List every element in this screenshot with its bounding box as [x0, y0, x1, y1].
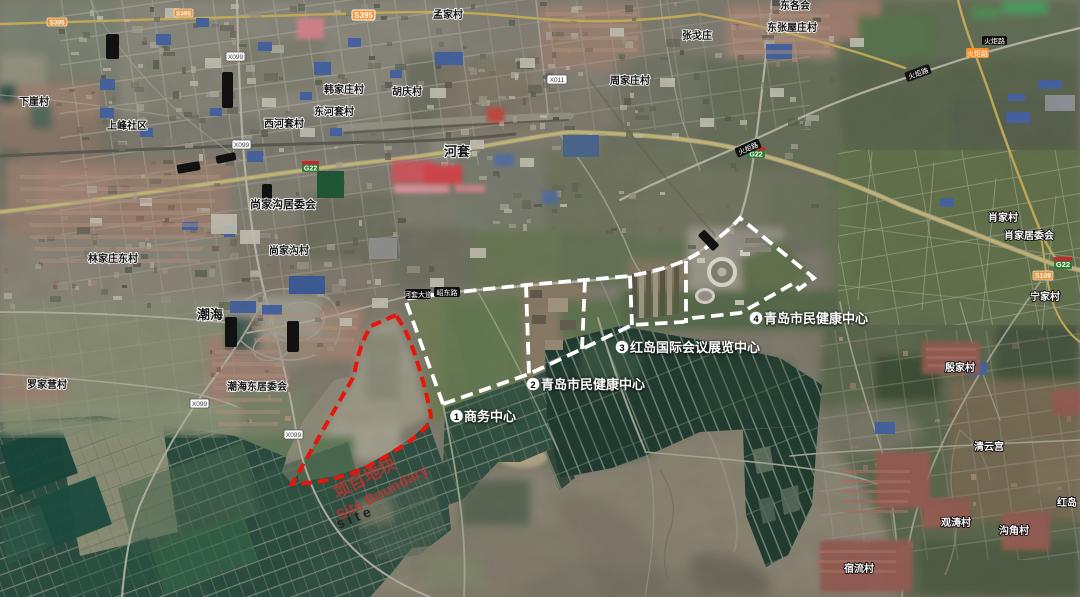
- svg-text:宿流村: 宿流村: [844, 562, 874, 575]
- svg-text:上峰社区: 上峰社区: [107, 119, 147, 132]
- svg-text:火炬路: 火炬路: [967, 49, 988, 58]
- svg-text:尚家沟村: 尚家沟村: [269, 244, 309, 257]
- svg-text:林家庄东村: 林家庄东村: [88, 252, 138, 265]
- svg-text:清云宫: 清云宫: [974, 440, 1004, 453]
- svg-text:红岛: 红岛: [1057, 496, 1077, 509]
- svg-text:X099: X099: [228, 54, 244, 61]
- svg-text:4: 4: [753, 314, 759, 325]
- svg-text:3: 3: [619, 343, 624, 354]
- svg-text:S395: S395: [176, 11, 192, 18]
- svg-text:肖家村: 肖家村: [988, 211, 1018, 224]
- svg-text:G22: G22: [749, 152, 762, 159]
- svg-text:肖家居委会: 肖家居委会: [1004, 229, 1054, 242]
- svg-text:尚家沟居委会: 尚家沟居委会: [250, 197, 317, 211]
- svg-text:宁家村: 宁家村: [1030, 290, 1060, 303]
- svg-text:孟家村: 孟家村: [433, 8, 463, 21]
- svg-text:S395: S395: [49, 20, 65, 27]
- svg-text:G22: G22: [1056, 260, 1070, 269]
- svg-text:胡庆村: 胡庆村: [392, 85, 422, 98]
- svg-text:罗家营村: 罗家营村: [27, 378, 67, 391]
- svg-text:火炬路: 火炬路: [984, 37, 1005, 46]
- svg-text:张戈庄: 张戈庄: [682, 29, 712, 42]
- svg-text:青岛市民健康中心: 青岛市民健康中心: [764, 311, 868, 326]
- svg-text:潮海: 潮海: [197, 307, 223, 322]
- svg-text:岹东路: 岹东路: [437, 288, 458, 297]
- svg-text:沟角村: 沟角村: [999, 524, 1029, 537]
- svg-text:X099: X099: [286, 432, 302, 439]
- svg-text:青岛市民健康中心: 青岛市民健康中心: [541, 377, 645, 392]
- svg-text:2: 2: [530, 380, 535, 391]
- svg-text:X099: X099: [234, 142, 250, 149]
- svg-text:商务中心: 商务中心: [464, 409, 516, 424]
- svg-text:东河套村: 东河套村: [314, 105, 354, 118]
- svg-text:周家庄村: 周家庄村: [610, 74, 650, 87]
- svg-text:东张屋庄村: 东张屋庄村: [767, 21, 817, 34]
- svg-text:潮海东居委会: 潮海东居委会: [227, 380, 287, 393]
- svg-text:西河套村: 西河套村: [264, 117, 304, 130]
- svg-text:下崖村: 下崖村: [19, 95, 49, 108]
- svg-text:X099: X099: [192, 401, 208, 408]
- svg-text:殷家村: 殷家村: [945, 361, 975, 374]
- svg-text:红岛国际会议展览中心: 红岛国际会议展览中心: [630, 340, 760, 355]
- svg-text:河套: 河套: [444, 144, 471, 159]
- svg-text:河套大道: 河套大道: [404, 290, 432, 299]
- svg-text:G22: G22: [304, 166, 317, 173]
- svg-text:韩家庄村: 韩家庄村: [324, 83, 364, 96]
- svg-text:S109: S109: [1035, 273, 1051, 280]
- svg-text:X011: X011: [550, 77, 565, 84]
- svg-text:东各会: 东各会: [780, 0, 810, 12]
- svg-text:1: 1: [454, 412, 460, 423]
- svg-text:观涛村: 观涛村: [941, 516, 971, 529]
- svg-text:S395: S395: [354, 11, 373, 20]
